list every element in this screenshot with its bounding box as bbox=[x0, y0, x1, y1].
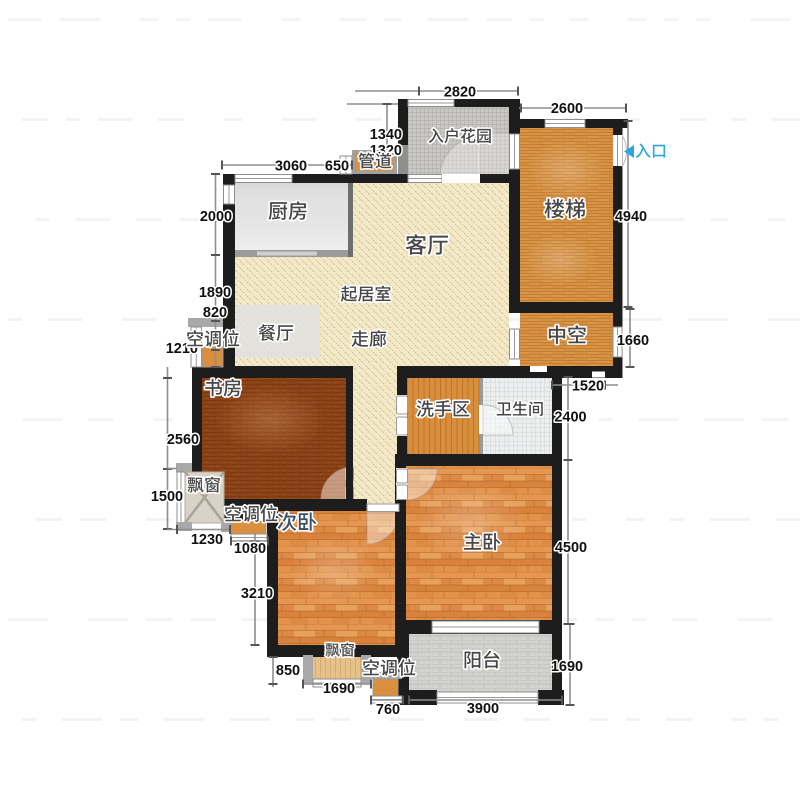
svg-text:4500: 4500 bbox=[555, 540, 587, 556]
svg-text:820: 820 bbox=[203, 305, 227, 321]
svg-text:760: 760 bbox=[376, 702, 400, 718]
svg-text:3210: 3210 bbox=[241, 586, 273, 602]
svg-text:1660: 1660 bbox=[617, 333, 649, 349]
svg-text:1520: 1520 bbox=[572, 379, 604, 395]
svg-text:1890: 1890 bbox=[199, 285, 231, 301]
svg-text:2560: 2560 bbox=[167, 432, 199, 448]
svg-text:3060: 3060 bbox=[275, 159, 307, 175]
svg-text:2000: 2000 bbox=[200, 209, 232, 225]
svg-text:1080: 1080 bbox=[234, 541, 266, 557]
svg-text:1690: 1690 bbox=[323, 681, 355, 697]
svg-text:2400: 2400 bbox=[554, 410, 586, 426]
svg-text:650: 650 bbox=[325, 159, 349, 175]
svg-text:2600: 2600 bbox=[551, 101, 583, 117]
svg-text:850: 850 bbox=[276, 663, 300, 679]
svg-text:2820: 2820 bbox=[444, 85, 476, 101]
svg-text:1340: 1340 bbox=[370, 127, 402, 143]
svg-text:1230: 1230 bbox=[191, 532, 223, 548]
svg-text:3900: 3900 bbox=[467, 701, 499, 717]
svg-text:4940: 4940 bbox=[615, 209, 647, 225]
svg-text:1500: 1500 bbox=[151, 489, 183, 505]
svg-text:1690: 1690 bbox=[551, 659, 583, 675]
